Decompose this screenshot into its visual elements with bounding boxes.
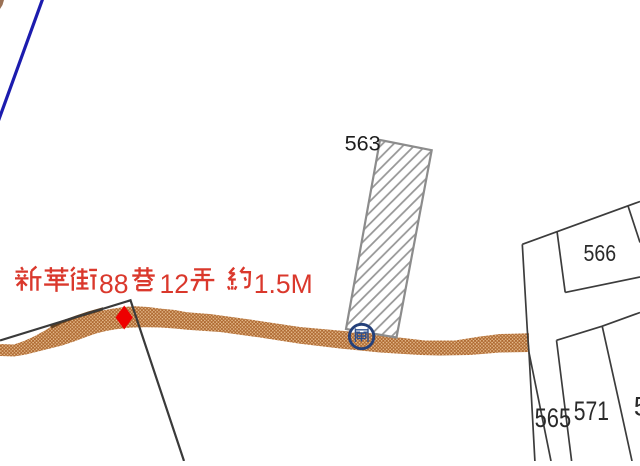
svg-text:566: 566 <box>584 240 617 266</box>
svg-text:88: 88 <box>99 269 128 299</box>
svg-text:571: 571 <box>574 396 609 426</box>
svg-text:12: 12 <box>160 269 189 299</box>
svg-text:5: 5 <box>634 391 640 421</box>
svg-text:1.5M: 1.5M <box>254 269 313 299</box>
svg-text:563: 563 <box>345 131 381 155</box>
svg-text:565: 565 <box>535 403 572 433</box>
